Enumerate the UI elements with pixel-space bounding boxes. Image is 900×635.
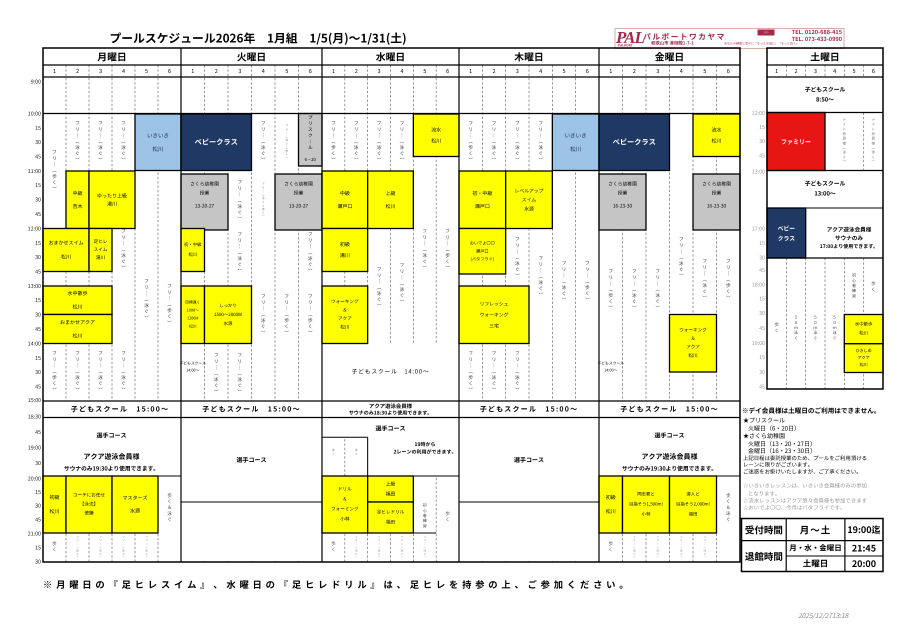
svg-text:フリ｜︵歩く︶: フリ｜︵歩く︶ [331, 121, 336, 164]
svg-text:14:00: 14:00 [28, 340, 41, 348]
svg-text:歩く＆泳ぐ: 歩く＆泳ぐ [726, 493, 731, 523]
svg-text:4: 4 [680, 67, 683, 75]
svg-text:しっかり: しっかり [219, 303, 237, 309]
svg-text:18:00: 18:00 [752, 281, 765, 289]
svg-text:13:00～: 13:00～ [814, 189, 836, 198]
svg-text:フリ｜︵泳ぐ︶: フリ｜︵泳ぐ︶ [515, 121, 520, 164]
svg-text:15: 15 [35, 354, 41, 362]
svg-text:土曜日: 土曜日 [810, 50, 839, 64]
svg-text:歩く: 歩く [332, 448, 335, 456]
svg-text:選手コース: 選手コース [514, 455, 544, 464]
svg-text:フリ｜︵歩く︶: フリ｜︵歩く︶ [52, 351, 57, 394]
svg-text:1000～: 1000～ [187, 308, 199, 313]
svg-text:フリ｜︵泳ぐ︶: フリ｜︵泳ぐ︶ [121, 229, 126, 272]
svg-text:3: 3 [238, 67, 241, 75]
svg-text:泳ぐ: 泳ぐ [355, 448, 358, 456]
svg-text:水曜日: 水曜日 [376, 50, 405, 64]
svg-text:歩く: 歩く [871, 281, 876, 293]
svg-text:土曜日: 土曜日 [803, 558, 829, 570]
svg-text:フリ｜︵歩く︶: フリ｜︵歩く︶ [167, 284, 172, 327]
svg-text:アクア遊泳会員様: アクア遊泳会員様 [84, 452, 140, 462]
svg-text:水源: 水源 [524, 205, 534, 212]
svg-text:選手コース: 選手コース [654, 431, 684, 440]
svg-text:TEL. 073-433-0990: TEL. 073-433-0990 [792, 35, 843, 43]
svg-text:19:00: 19:00 [28, 444, 41, 452]
svg-text:フリ｜︵泳ぐ︶: フリ｜︵泳ぐ︶ [261, 121, 266, 164]
svg-text:フリ｜︵歩く︶: フリ｜︵歩く︶ [284, 294, 289, 337]
svg-text:フリ｜︵泳ぐ︶: フリ｜︵泳ぐ︶ [98, 351, 103, 394]
svg-text:45: 45 [759, 324, 765, 332]
svg-text:15: 15 [35, 239, 41, 247]
svg-text:30: 30 [35, 311, 41, 319]
svg-text:15: 15 [35, 488, 41, 496]
svg-text:いきいき: いきいき [565, 132, 587, 140]
svg-text:フリ｜︵泳ぐ︶: フリ｜︵泳ぐ︶ [633, 535, 636, 559]
svg-text:3: 3 [656, 67, 659, 75]
svg-text:三宅: 三宅 [489, 322, 499, 329]
svg-text:15:00: 15:00 [28, 396, 41, 404]
svg-text:30: 30 [759, 309, 765, 317]
svg-text:フリ｜︵泳ぐ︶: フリ｜︵泳ぐ︶ [237, 232, 242, 275]
svg-text:歩く＆泳ぐ: 歩く＆泳ぐ [167, 493, 172, 523]
svg-text:リフレッシュ: リフレッシュ [480, 300, 509, 307]
svg-text:フリ｜︵泳ぐ︶: フリ｜︵泳ぐ︶ [355, 535, 358, 559]
svg-text:初級: 初級 [49, 494, 59, 501]
svg-text:フリ｜︵泳ぐ↓歩く︶: フリ｜︵泳ぐ↓歩く︶ [285, 124, 288, 161]
svg-text:コーチにお任せ: コーチにお任せ [73, 493, 106, 499]
svg-text:目指そう2,000m!: 目指そう2,000m! [676, 502, 710, 508]
svg-text:19時から: 19時から [415, 441, 436, 448]
svg-text:フリ｜︵泳ぐ︶: フリ｜︵泳ぐ︶ [702, 259, 707, 302]
svg-text:達人と: 達人と [686, 492, 699, 498]
svg-text:目標遠く: 目標遠く [185, 299, 200, 305]
svg-text:足ヒレドリル: 足ヒレドリル [377, 510, 405, 516]
svg-text:フリ｜︵泳ぐ︶: フリ｜︵泳ぐ︶ [680, 535, 683, 559]
svg-text:サウナのみ18:30より使用できます。: サウナのみ18:30より使用できます。 [349, 410, 432, 417]
svg-text:５０ｍ泳ぐ: ５０ｍ泳ぐ [813, 315, 817, 342]
svg-text:フリ｜︵歩く︶: フリ｜︵歩く︶ [726, 259, 731, 302]
svg-text:子どもスクール 15:00～: 子どもスクール 15:00～ [71, 405, 170, 415]
svg-text:水中散歩: 水中散歩 [67, 290, 87, 297]
svg-text:4: 4 [539, 67, 542, 75]
svg-text:アクア遊泳会員様: アクア遊泳会員様 [642, 452, 698, 462]
svg-text:3: 3 [378, 67, 381, 75]
svg-text:フリ｜︵泳ぐ︶: フリ｜︵泳ぐ︶ [492, 351, 497, 394]
svg-text:45: 45 [35, 428, 41, 436]
svg-text:フリ｜︵泳ぐ︶: フリ｜︵泳ぐ︶ [703, 535, 706, 559]
svg-text:子どもスクール: 子どもスクール [805, 85, 846, 94]
svg-text:初・中級: 初・中級 [472, 190, 492, 197]
svg-text:5: 5 [852, 67, 855, 75]
svg-text:フリ｜︵泳ぐ︶: フリ｜︵泳ぐ︶ [354, 121, 359, 164]
svg-text:ベビー: ベビー [778, 224, 796, 233]
svg-text:45: 45 [35, 325, 41, 333]
svg-text:フリ｜︵泳ぐ︶: フリ｜︵泳ぐ︶ [237, 353, 242, 396]
svg-text:２５ｍ泳ぐ: ２５ｍ泳ぐ [794, 315, 798, 342]
svg-text:13-20-27: 13-20-27 [195, 203, 215, 210]
svg-text:さくら幼稚園: さくら幼稚園 [608, 181, 637, 188]
svg-text:授業: 授業 [200, 190, 210, 197]
svg-text:45: 45 [759, 383, 765, 391]
svg-text:5: 5 [423, 67, 426, 75]
svg-text:フリ｜︵泳ぐ︶: フリ｜︵泳ぐ︶ [400, 121, 405, 164]
svg-text:フリ｜︵泳ぐ︶: フリ｜︵泳ぐ︶ [75, 351, 80, 394]
svg-text:フリ｜︵歩く︶: フリ｜︵歩く︶ [468, 351, 473, 394]
svg-text:PALPORT: PALPORT [618, 42, 633, 47]
svg-text:2: 2 [633, 67, 636, 75]
svg-text:松川: 松川 [385, 203, 395, 210]
svg-text:5: 5 [703, 67, 706, 75]
svg-text:2: 2 [492, 67, 495, 75]
svg-text:フリ｜︵泳ぐ︶: フリ｜︵泳ぐ︶ [401, 535, 404, 559]
svg-text:福田: 福田 [689, 512, 698, 518]
svg-text:＆: ＆ [691, 336, 696, 342]
svg-text:サウナのみ19:30より使用できます。: サウナのみ19:30より使用できます。 [622, 464, 717, 473]
svg-text:フリ｜︵泳ぐ︶: フリ｜︵泳ぐ︶ [99, 535, 102, 559]
svg-text:さくら幼稚園: さくら幼稚園 [190, 181, 219, 188]
svg-text:6: 6 [446, 67, 449, 75]
svg-text:☆おいでよ〇〇、今月はバタフライです。: ☆おいでよ〇〇、今月はバタフライです。 [743, 504, 845, 512]
svg-text:6: 6 [872, 67, 875, 75]
svg-text:30: 30 [35, 368, 41, 376]
svg-text:6: 6 [727, 67, 730, 75]
svg-text:45: 45 [35, 383, 41, 391]
svg-text:2: 2 [76, 67, 79, 75]
svg-text:1: 1 [332, 67, 335, 75]
svg-text:＆: ＆ [343, 497, 348, 503]
svg-text:スイム: スイム [522, 196, 537, 203]
svg-text:2: 2 [794, 67, 797, 75]
svg-text:フリ｜︵歩く︶: フリ｜︵歩く︶ [585, 261, 590, 304]
svg-text:45: 45 [35, 268, 41, 276]
svg-text:松川: 松川 [688, 353, 698, 359]
svg-text:1: 1 [609, 67, 612, 75]
svg-text:プリスク｜ル: プリスク｜ル [308, 115, 313, 151]
svg-text:8:50～: 8:50～ [816, 95, 834, 104]
svg-text:15: 15 [759, 123, 765, 131]
svg-text:福田: 福田 [386, 520, 396, 526]
svg-text:瀬戸口: 瀬戸口 [476, 248, 489, 254]
svg-text:20:00: 20:00 [28, 475, 41, 483]
svg-text:選手コース: 選手コース [236, 455, 266, 464]
svg-text:フリ｜︵泳ぐ︶: フリ｜︵泳ぐ︶ [76, 535, 79, 559]
svg-text:子どもスクール 14:00～: 子どもスクール 14:00～ [352, 367, 430, 376]
svg-text:15: 15 [35, 296, 41, 304]
svg-text:15: 15 [35, 544, 41, 552]
svg-text:子どもスクール 15:00～: 子どもスクール 15:00～ [620, 405, 719, 415]
svg-text:フリ｜︵泳ぐ︶: フリ｜︵泳ぐ︶ [144, 279, 149, 322]
svg-text:2025/12/2713:18: 2025/12/2713:18 [798, 610, 850, 620]
svg-text:初心者練習: 初心者練習 [852, 273, 856, 300]
svg-text:30: 30 [35, 253, 41, 261]
svg-text:9:00: 9:00 [31, 78, 41, 86]
svg-text:足ヒレ: 足ヒレ [94, 239, 108, 245]
svg-text:月・水・金曜日: 月・水・金曜日 [789, 543, 842, 554]
svg-text:金曜日: 金曜日 [655, 50, 684, 64]
svg-text:流水: 流水 [431, 126, 441, 133]
svg-text:スイム: スイム [94, 247, 108, 253]
svg-text:○○: ○○ [764, 30, 769, 36]
svg-text:フリ｜︵泳ぐ︶: フリ｜︵泳ぐ︶ [562, 261, 567, 304]
svg-text:21:00: 21:00 [28, 530, 41, 538]
svg-text:レベルアップ: レベルアップ [515, 187, 544, 194]
svg-text:フリ｜︵泳ぐ︶: フリ｜︵泳ぐ︶ [214, 353, 219, 396]
svg-text:フリ｜︵泳ぐ︶: フリ｜︵泳ぐ︶ [121, 351, 126, 394]
svg-text:14:00～: 14:00～ [186, 369, 199, 374]
svg-text:松川: 松川 [860, 362, 868, 368]
svg-text:15: 15 [759, 353, 765, 361]
svg-text:10:00: 10:00 [28, 110, 41, 118]
svg-text:ファミリー: ファミリー [781, 137, 811, 146]
svg-text:吉木: 吉木 [72, 203, 82, 210]
svg-text:1500～2000W: 1500～2000W [214, 312, 242, 318]
svg-text:アクア: アクア [338, 316, 352, 322]
svg-text:フリ｜︵泳ぐ︶: フリ｜︵泳ぐ︶ [423, 535, 426, 559]
svg-text:5: 5 [145, 67, 148, 75]
svg-text:子どもスクール: 子どもスクール [179, 361, 206, 367]
svg-text:14:00～: 14:00～ [604, 369, 617, 374]
svg-text:ゆったり上級: ゆったり上級 [97, 192, 127, 199]
svg-text:4: 4 [262, 67, 265, 75]
svg-text:16-23-30: 16-23-30 [613, 203, 633, 210]
svg-text:松川: 松川 [859, 331, 868, 337]
svg-text:歩く: 歩く [445, 511, 450, 523]
svg-text:フリ｜︵泳ぐ︶: フリ｜︵泳ぐ︶ [122, 535, 125, 559]
svg-text:松川: 松川 [188, 252, 197, 258]
svg-text:和歌山市 湊御殿1-7-1: 和歌山市 湊御殿1-7-1 [651, 41, 694, 47]
svg-text:フリ｜︵泳ぐ︶: フリ｜︵泳ぐ︶ [145, 535, 148, 559]
svg-text:フリ｜︵泳ぐ︶: フリ｜︵泳ぐ︶ [378, 535, 381, 559]
svg-text:さくら幼稚園: さくら幼稚園 [702, 181, 731, 188]
svg-text:水源: 水源 [224, 321, 233, 327]
svg-text:1: 1 [191, 67, 194, 75]
svg-text:子どもスクール: 子どもスクール [805, 179, 846, 188]
svg-text:初級: 初級 [606, 494, 616, 501]
svg-text:4: 4 [400, 67, 403, 75]
svg-text:フリ｜︵泳ぐ︶: フリ｜︵泳ぐ︶ [237, 180, 242, 223]
svg-text:フリ｜︵泳ぐ︶: フリ｜︵泳ぐ︶ [538, 256, 543, 299]
svg-text:中級: 中級 [340, 190, 350, 197]
svg-text:30: 30 [35, 502, 41, 510]
svg-text:ウォーキング: ウォーキング [331, 299, 359, 305]
svg-text:子どもスクール 15:00～: 子どもスクール 15:00～ [480, 405, 579, 415]
svg-text:フリ｜︵泳ぐ︶: フリ｜︵泳ぐ︶ [655, 269, 660, 312]
svg-text:17:00: 17:00 [752, 225, 765, 233]
svg-text:水中散歩: 水中散歩 [855, 322, 873, 328]
svg-text:5: 5 [562, 67, 565, 75]
svg-text:30: 30 [35, 138, 41, 146]
svg-text:ひきしめ: ひきしめ [856, 348, 872, 354]
svg-text:ナイト会員様︵泳ぐ︶: ナイト会員様︵泳ぐ︶ [843, 117, 847, 164]
svg-text:※月曜日の『足ヒレスイム』、水曜日の『足ヒレドリル』は、足ヒ: ※月曜日の『足ヒレスイム』、水曜日の『足ヒレドリル』は、足ヒレを持参の上、ご参加… [43, 577, 632, 591]
svg-text:松川: 松川 [431, 137, 441, 144]
svg-text:受付時間: 受付時間 [745, 523, 783, 537]
svg-text:選手コース: 選手コース [375, 424, 405, 433]
svg-text:小林: 小林 [340, 517, 350, 523]
svg-text:歩く: 歩く [331, 541, 336, 553]
svg-text:湯川: 湯川 [96, 255, 106, 261]
svg-text:1: 1 [775, 67, 778, 75]
svg-text:フリ｜︵泳ぐ︶: フリ｜︵泳ぐ︶ [98, 121, 103, 164]
svg-text:松川: 松川 [711, 137, 721, 144]
svg-text:サウナのみ: サウナのみ [835, 234, 863, 242]
svg-text:アクア: アクア [686, 345, 700, 351]
svg-text:おいでよ〇〇: おいでよ〇〇 [470, 240, 495, 246]
svg-text:フリ｜︵泳ぐ︶: フリ｜︵泳ぐ︶ [679, 237, 684, 280]
svg-text:瀬戸口: 瀬戸口 [475, 203, 490, 210]
svg-text:ベビークラス: ベビークラス [613, 137, 656, 147]
svg-text:2: 2 [355, 67, 358, 75]
svg-text:フリ｜︵泳ぐ︶: フリ｜︵泳ぐ︶ [121, 121, 126, 164]
svg-text:初・中級: 初・中級 [184, 242, 202, 248]
svg-text:フリ｜︵泳ぐ︶: フリ｜︵泳ぐ︶ [308, 232, 313, 275]
svg-text:45: 45 [35, 516, 41, 524]
svg-text:30: 30 [759, 254, 765, 262]
svg-text:15: 15 [759, 295, 765, 303]
svg-text:松川: 松川 [570, 145, 581, 153]
svg-text:ナイト会員様︵歩く︶: ナイト会員様︵歩く︶ [872, 117, 876, 164]
svg-text:火曜日: 火曜日 [237, 50, 266, 64]
svg-text:45: 45 [35, 210, 41, 218]
svg-text:19:00: 19:00 [752, 339, 765, 347]
svg-text:18:30: 18:30 [28, 413, 41, 421]
svg-text:選手コース: 選手コース [96, 431, 126, 440]
svg-text:月曜日: 月曜日 [97, 50, 126, 64]
svg-text:＆: ＆ [343, 308, 348, 314]
svg-text:上級: 上級 [386, 481, 396, 488]
svg-text:おまかせアクア: おまかせアクア [60, 319, 95, 326]
svg-text:フリ｜︵泳ぐ︶: フリ｜︵泳ぐ︶ [377, 267, 382, 310]
svg-text:歩く: 歩く [52, 541, 57, 553]
svg-text:3: 3 [516, 67, 519, 75]
svg-text:21:45: 21:45 [852, 542, 876, 555]
svg-text:フリ｜︵泳ぐ︶: フリ｜︵泳ぐ︶ [422, 229, 427, 272]
svg-text:さくら幼稚園: さくら幼稚園 [284, 181, 313, 188]
svg-text:ウォーキング: ウォーキング [679, 328, 707, 334]
svg-text:フリ｜︵歩く︶: フリ｜︵歩く︶ [608, 269, 613, 312]
svg-text:30: 30 [759, 137, 765, 145]
svg-text:15: 15 [35, 181, 41, 189]
svg-text:５０ｍ泳ぐ: ５０ｍ泳ぐ [833, 315, 837, 342]
svg-text:フリ｜︵泳ぐ︶: フリ｜︵泳ぐ︶ [515, 237, 520, 280]
svg-text:19:00迄: 19:00迄 [847, 523, 880, 536]
svg-text:ベビークラス: ベビークラス [195, 137, 238, 147]
svg-text:フリ｜︵歩く︶: フリ｜︵歩く︶ [308, 294, 313, 337]
svg-text:【泳法】: 【泳法】 [80, 502, 98, 508]
svg-text:(バタフライ): (バタフライ) [470, 256, 494, 262]
svg-text:1200M: 1200M [187, 316, 199, 321]
svg-text:松川: 松川 [340, 325, 350, 331]
svg-text:湯川: 湯川 [107, 200, 117, 207]
svg-text:瀬戸口: 瀬戸口 [337, 203, 352, 210]
svg-text:3: 3 [814, 67, 817, 75]
svg-text:☆いきいきレッスンは、いきいき会員様のみの参加: ☆いきいきレッスンは、いきいき会員様のみの参加 [743, 482, 867, 490]
svg-text:松川: 松川 [72, 304, 82, 311]
svg-text:30: 30 [35, 459, 41, 467]
svg-text:上級: 上級 [385, 190, 395, 197]
svg-text:フリ｜︵泳ぐ︶: フリ｜︵泳ぐ︶ [261, 294, 266, 337]
svg-text:17:00より使用できます。: 17:00より使用できます。 [820, 243, 878, 250]
svg-text:アクア: アクア [858, 355, 870, 361]
svg-text:ウォーキング: ウォーキング [480, 311, 509, 318]
svg-text:クラス: クラス [778, 234, 796, 243]
svg-text:2: 2 [215, 67, 218, 75]
svg-text:授業: 授業 [618, 190, 628, 197]
svg-text:あなたの健康と幸せに「もっとお役に」「もっと近く」: あなたの健康と幸せに「もっとお役に」「もっと近く」 [724, 42, 799, 46]
svg-text:30: 30 [35, 558, 41, 566]
svg-text:4: 4 [833, 67, 836, 75]
svg-text:フリ｜︵泳ぐ︶: フリ｜︵泳ぐ︶ [75, 121, 80, 164]
svg-text:5: 5 [285, 67, 288, 75]
svg-text:6: 6 [586, 67, 589, 75]
svg-text:フリ｜︵泳ぐ︶: フリ｜︵泳ぐ︶ [632, 269, 637, 312]
svg-text:松川: 松川 [152, 145, 163, 153]
svg-text:松川: 松川 [49, 508, 59, 515]
svg-text:マスターズ: マスターズ [122, 495, 147, 502]
svg-text:歩く: 歩く [774, 322, 779, 334]
svg-text:フリ｜︵泳ぐ︶: フリ｜︵泳ぐ︶ [400, 263, 405, 306]
svg-text:2レーンの利用ができます。: 2レーンの利用ができます。 [394, 449, 457, 456]
svg-text:13-20-27: 13-20-27 [289, 203, 309, 210]
svg-text:13:00: 13:00 [28, 282, 41, 290]
svg-text:中級: 中級 [72, 190, 82, 197]
svg-text:フリ｜︵歩く︶: フリ｜︵歩く︶ [445, 229, 450, 272]
svg-text:子どもスクール 15:00～: 子どもスクール 15:00～ [202, 405, 301, 415]
svg-text:プールスケジュール2026年 1月組 1/5(月)～1/31: プールスケジュール2026年 1月組 1/5(月)～1/31(土) [109, 30, 406, 47]
svg-text:フリ｜︵泳ぐ︶: フリ｜︵泳ぐ︶ [377, 121, 382, 164]
svg-text:15: 15 [759, 239, 765, 247]
svg-text:授業: 授業 [712, 190, 722, 197]
svg-text:15: 15 [35, 124, 41, 132]
svg-text:子どもスクール: 子どもスクール [597, 361, 624, 367]
svg-text:松川: 松川 [189, 323, 197, 329]
svg-text:1: 1 [53, 67, 56, 75]
svg-text:45: 45 [35, 153, 41, 161]
svg-text:30: 30 [759, 368, 765, 376]
svg-text:サウナのみ19:30より使用できます。: サウナのみ19:30より使用できます。 [64, 464, 159, 473]
svg-text:※デイ会員様は土曜日のご利用はできません。: ※デイ会員様は土曜日のご利用はできません。 [742, 405, 880, 415]
svg-text:4: 4 [122, 67, 125, 75]
svg-text:同志君と: 同志君と [637, 492, 655, 498]
svg-text:30: 30 [35, 196, 41, 204]
svg-text:初心者練習: 初心者練習 [423, 503, 427, 530]
svg-text:フリ｜︵泳ぐ︶: フリ｜︵泳ぐ︶ [538, 121, 543, 164]
svg-text:フリ｜︵歩く︶: フリ｜︵歩く︶ [468, 121, 473, 164]
svg-text:1: 1 [469, 67, 472, 75]
svg-text:3: 3 [99, 67, 102, 75]
svg-text:松川: 松川 [61, 254, 71, 261]
svg-text:いきいき: いきいき [147, 132, 169, 140]
svg-text:福田: 福田 [386, 491, 396, 498]
svg-text:松川: 松川 [72, 332, 82, 339]
svg-text:12:00: 12:00 [752, 109, 765, 117]
svg-text:フリ｜︵泳ぐ↓歩く︶: フリ｜︵泳ぐ↓歩く︶ [262, 182, 265, 219]
svg-text:フリ｜︵泳ぐ︶: フリ｜︵泳ぐ︶ [656, 535, 659, 559]
svg-text:徳鎌: 徳鎌 [84, 511, 94, 517]
svg-text:16-23-30: 16-23-30 [707, 203, 727, 210]
svg-text:アクア遊泳会員様: アクア遊泳会員様 [827, 226, 872, 234]
svg-text:12:00: 12:00 [28, 225, 41, 233]
svg-text:歩く: 歩く [609, 541, 614, 553]
svg-text:20:00: 20:00 [852, 557, 876, 570]
svg-text:フリ｜︵歩く︶: フリ｜︵歩く︶ [52, 150, 57, 193]
svg-text:45: 45 [759, 152, 765, 160]
svg-text:松川: 松川 [606, 508, 616, 515]
svg-text:6: 6 [168, 67, 171, 75]
svg-text:フリ｜︵泳ぐ︶: フリ｜︵泳ぐ︶ [515, 351, 520, 394]
svg-text:小林: 小林 [642, 512, 651, 518]
svg-text:フリ｜︵泳ぐ︶: フリ｜︵泳ぐ︶ [492, 121, 497, 164]
